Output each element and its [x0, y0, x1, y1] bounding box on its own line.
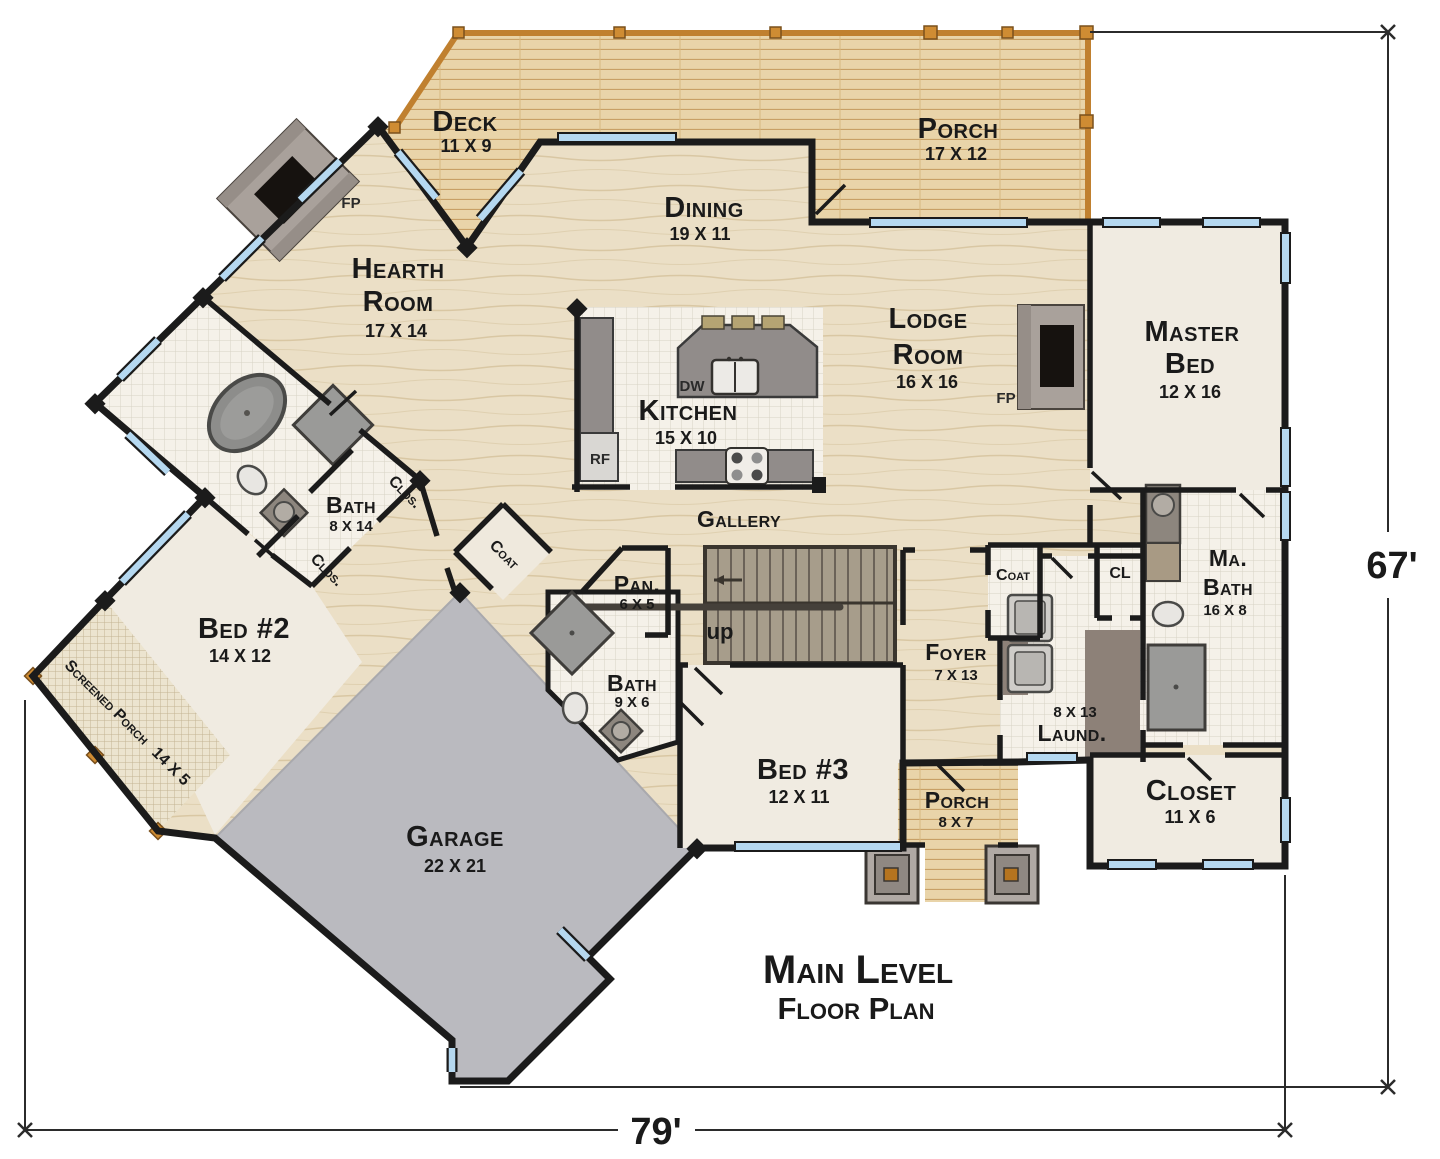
coat-right-label: Coat	[996, 567, 1030, 584]
room-label-master-bath-2: Bath	[1203, 574, 1253, 600]
kitchen-counter-left	[580, 318, 613, 433]
room-label-lodge-2: Room	[893, 339, 964, 371]
fp-label-hearth: FP	[341, 195, 360, 212]
room-label-master-bath-1: Ma.	[1209, 545, 1247, 571]
window	[1203, 860, 1253, 869]
gallery-label: Gallery	[697, 506, 781, 532]
window	[1281, 428, 1290, 486]
room-size-closet: 11 X 6	[1164, 807, 1215, 827]
room-size-deck: 11 X 9	[440, 136, 491, 156]
room-label-master-1: Master	[1145, 316, 1240, 348]
cooktop	[726, 448, 768, 484]
room-label-garage: Garage	[406, 821, 504, 853]
cl-label: CL	[1109, 565, 1131, 582]
room-size-pantry: 6 X 5	[619, 596, 654, 613]
room-label-closet: Closet	[1146, 775, 1237, 807]
room-label-laundry: Laund.	[1037, 720, 1106, 746]
room-label-bath2: Bath	[607, 670, 657, 696]
room-size-kitchen: 15 X 10	[655, 428, 717, 448]
room-label-bath-main: Bath	[326, 492, 376, 518]
stool	[732, 316, 754, 329]
lodge-fireplace	[1018, 305, 1084, 409]
window	[1103, 218, 1160, 227]
dimension-width: 79'	[630, 1111, 681, 1153]
room-label-pantry: Pan.	[614, 571, 660, 597]
room-label-hearth-2: Room	[363, 286, 434, 318]
room-label-bed3: Bed #3	[757, 754, 849, 786]
room-size-master: 12 X 16	[1159, 382, 1221, 402]
room-size-porch-top: 17 X 12	[925, 144, 987, 164]
room-label-foyer: Foyer	[925, 639, 986, 665]
stool	[702, 316, 724, 329]
window	[870, 218, 1027, 227]
dw-label: DW	[680, 378, 706, 395]
room-label-kitchen: Kitchen	[639, 395, 738, 427]
dimension-height: 67'	[1366, 545, 1417, 587]
floor-plan-canvas: Deck 11 X 9 Porch 17 X 12 Dining 19 X 11…	[0, 0, 1440, 1159]
floor-plan-svg: Deck 11 X 9 Porch 17 X 12 Dining 19 X 11…	[0, 0, 1440, 1159]
room-size-lodge: 16 X 16	[896, 372, 958, 392]
window	[1027, 753, 1077, 762]
room-size-bed2: 14 X 12	[209, 646, 271, 666]
room-label-deck: Deck	[432, 106, 497, 138]
window	[558, 133, 676, 142]
window	[1108, 860, 1156, 869]
room-size-bath2: 9 X 6	[614, 694, 649, 711]
room-label-bed2: Bed #2	[198, 613, 290, 645]
room-size-bath-main: 8 X 14	[329, 518, 373, 535]
room-label-dining: Dining	[664, 192, 744, 224]
toilet	[563, 693, 587, 723]
fp-label-lodge: FP	[996, 390, 1015, 407]
toilet	[1153, 602, 1183, 626]
room-size-porch-front: 8 X 7	[938, 814, 973, 831]
up-label: up	[707, 619, 734, 644]
room-size-hearth: 17 X 14	[365, 321, 427, 341]
window	[1281, 492, 1290, 540]
window	[735, 842, 901, 851]
stool	[762, 316, 784, 329]
room-size-dining: 19 X 11	[669, 224, 730, 244]
room-size-laundry: 8 X 13	[1053, 704, 1096, 721]
room-size-foyer: 7 X 13	[934, 667, 977, 684]
room-size-garage: 22 X 21	[424, 856, 486, 876]
plan-title-line1: Main Level	[763, 948, 953, 992]
window	[1203, 218, 1260, 227]
rf-label: RF	[590, 451, 610, 468]
room-label-porch-top: Porch	[918, 113, 999, 145]
room-label-porch-front: Porch	[925, 787, 989, 813]
plan-title-line2: Floor Plan	[778, 991, 935, 1026]
window	[1281, 233, 1290, 283]
room-size-master-bath: 16 X 8	[1203, 602, 1246, 619]
room-label-master-2: Bed	[1165, 348, 1215, 380]
room-label-hearth-1: Hearth	[352, 253, 445, 285]
room-label-lodge-1: Lodge	[888, 303, 967, 335]
window	[1281, 798, 1290, 842]
room-size-bed3: 12 X 11	[768, 787, 829, 807]
